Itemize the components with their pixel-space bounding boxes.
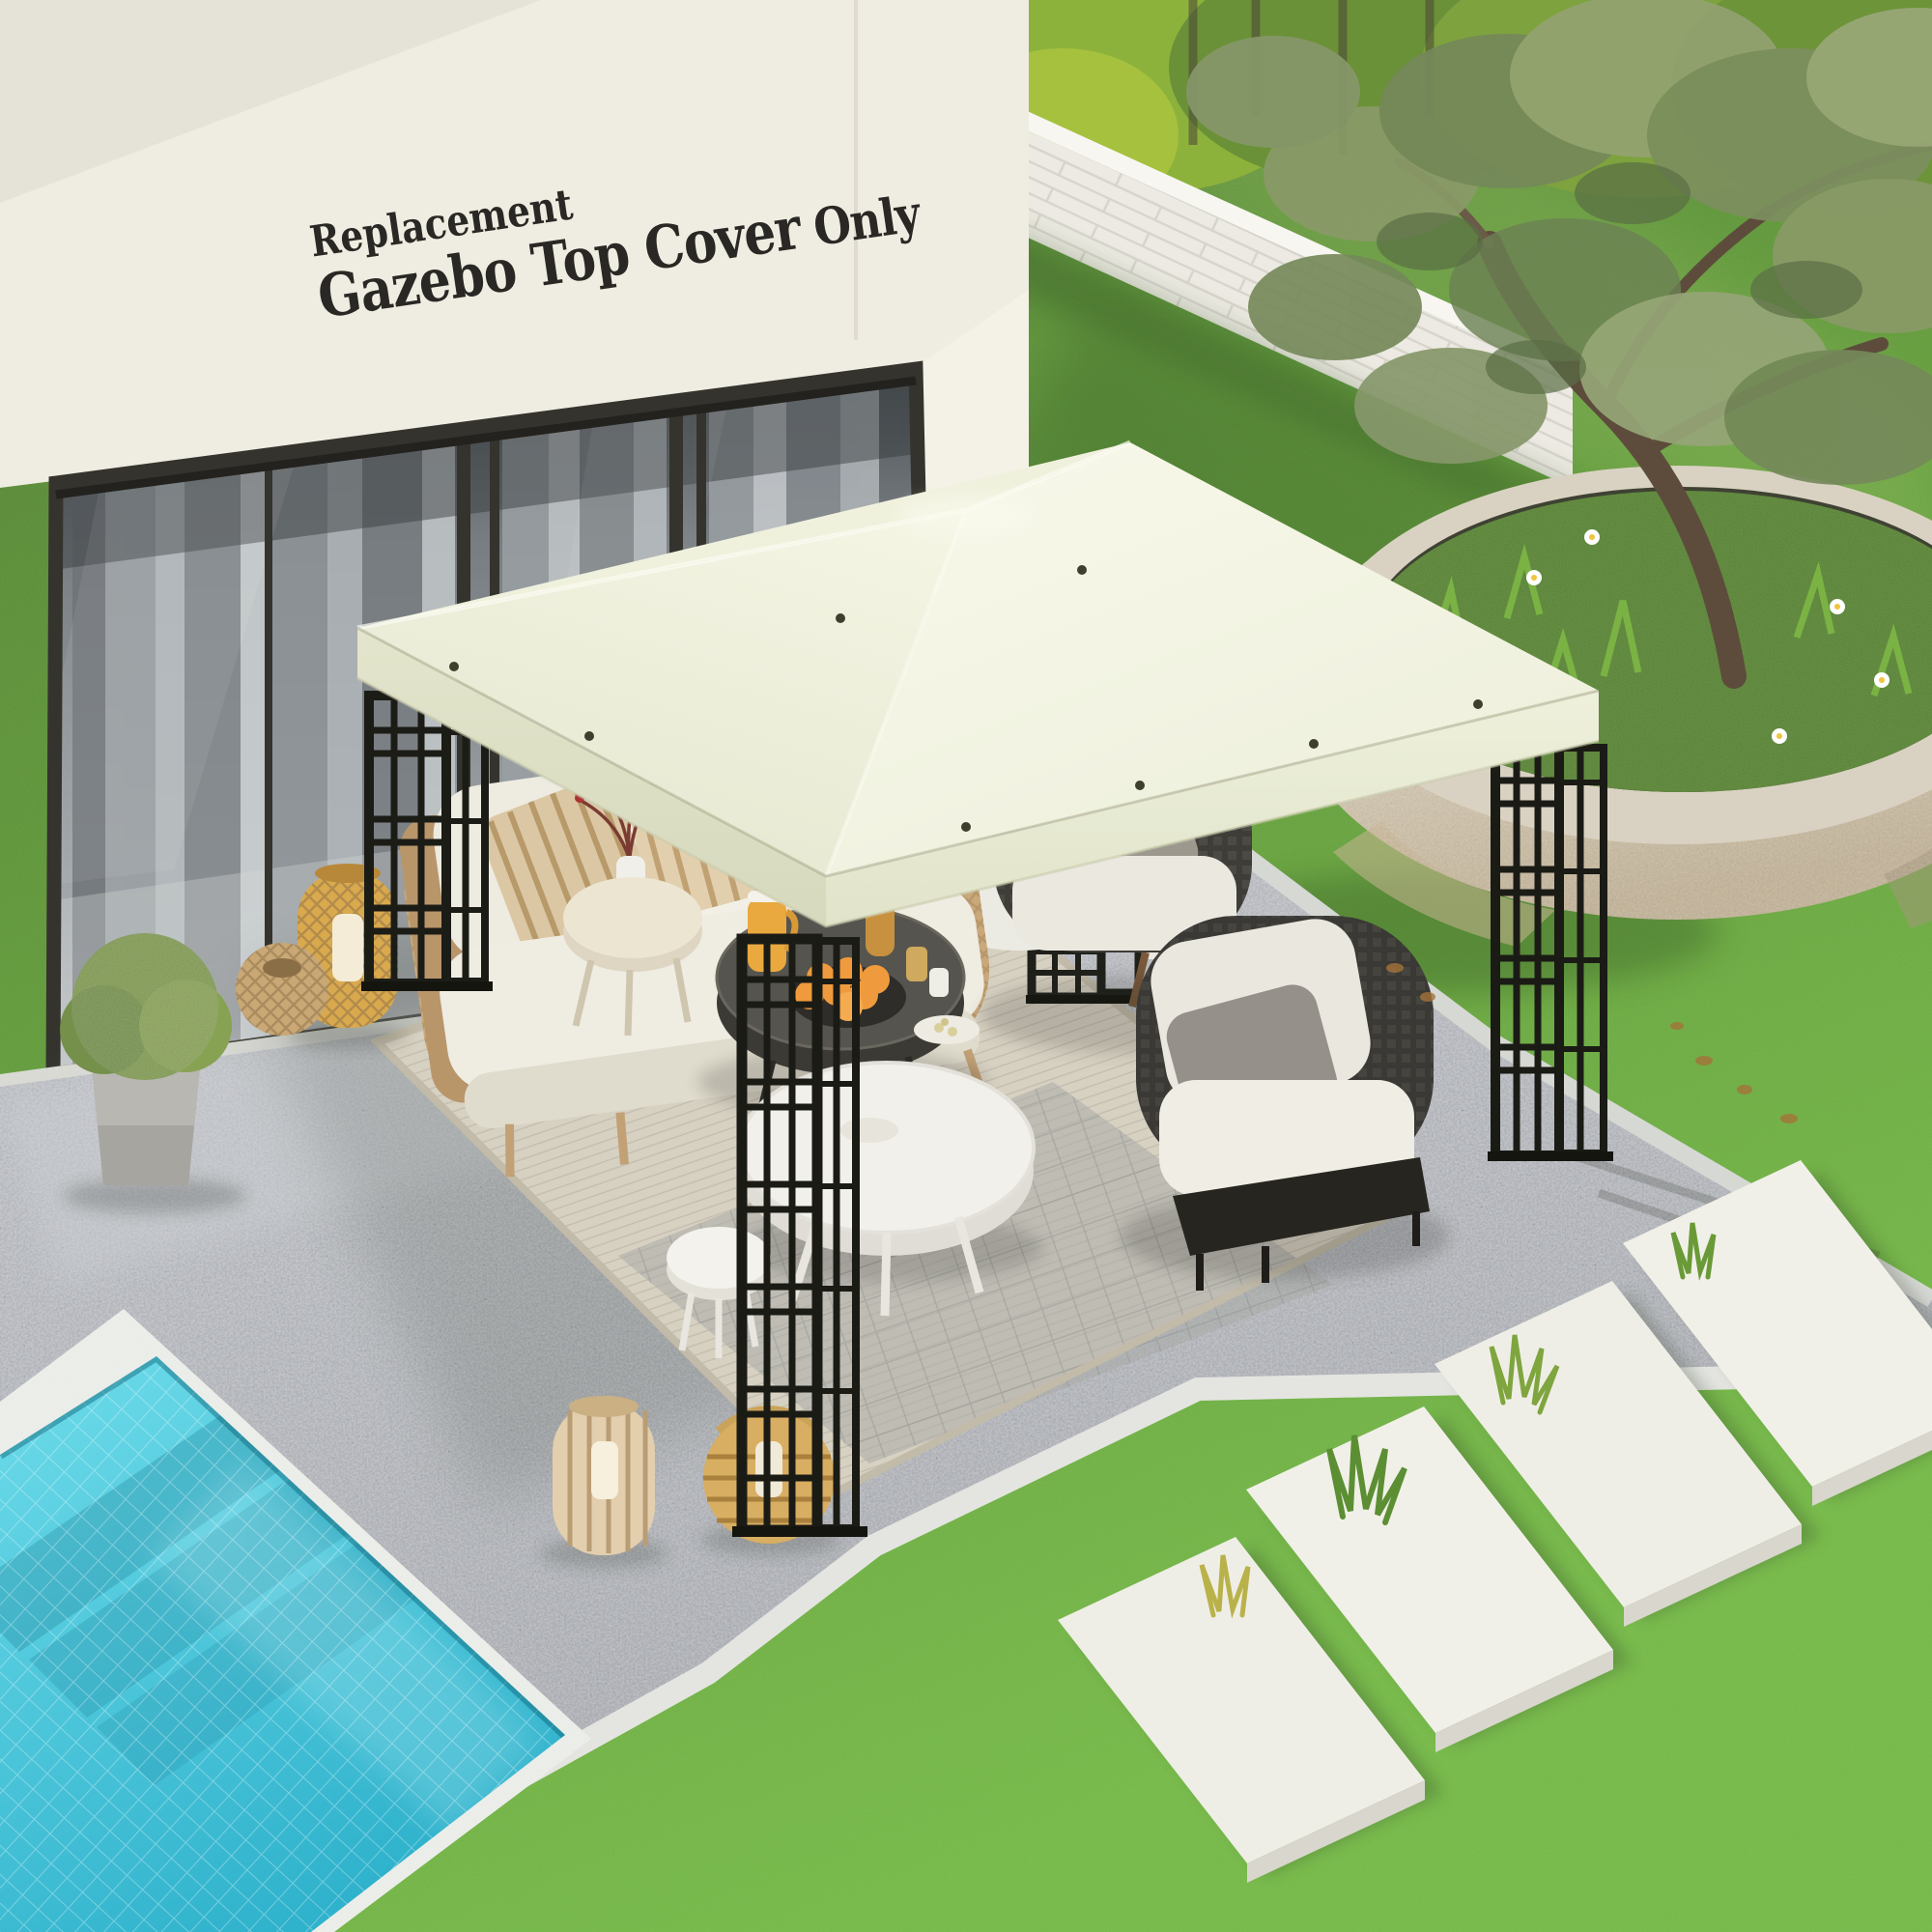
drink-glass — [906, 947, 927, 981]
milk-glass — [929, 968, 949, 997]
rattan-ball — [236, 943, 328, 1036]
scene-illustration — [0, 0, 1932, 1932]
backyard-product-scene: Replacement Gazebo Top Cover Only — [0, 0, 1932, 1932]
